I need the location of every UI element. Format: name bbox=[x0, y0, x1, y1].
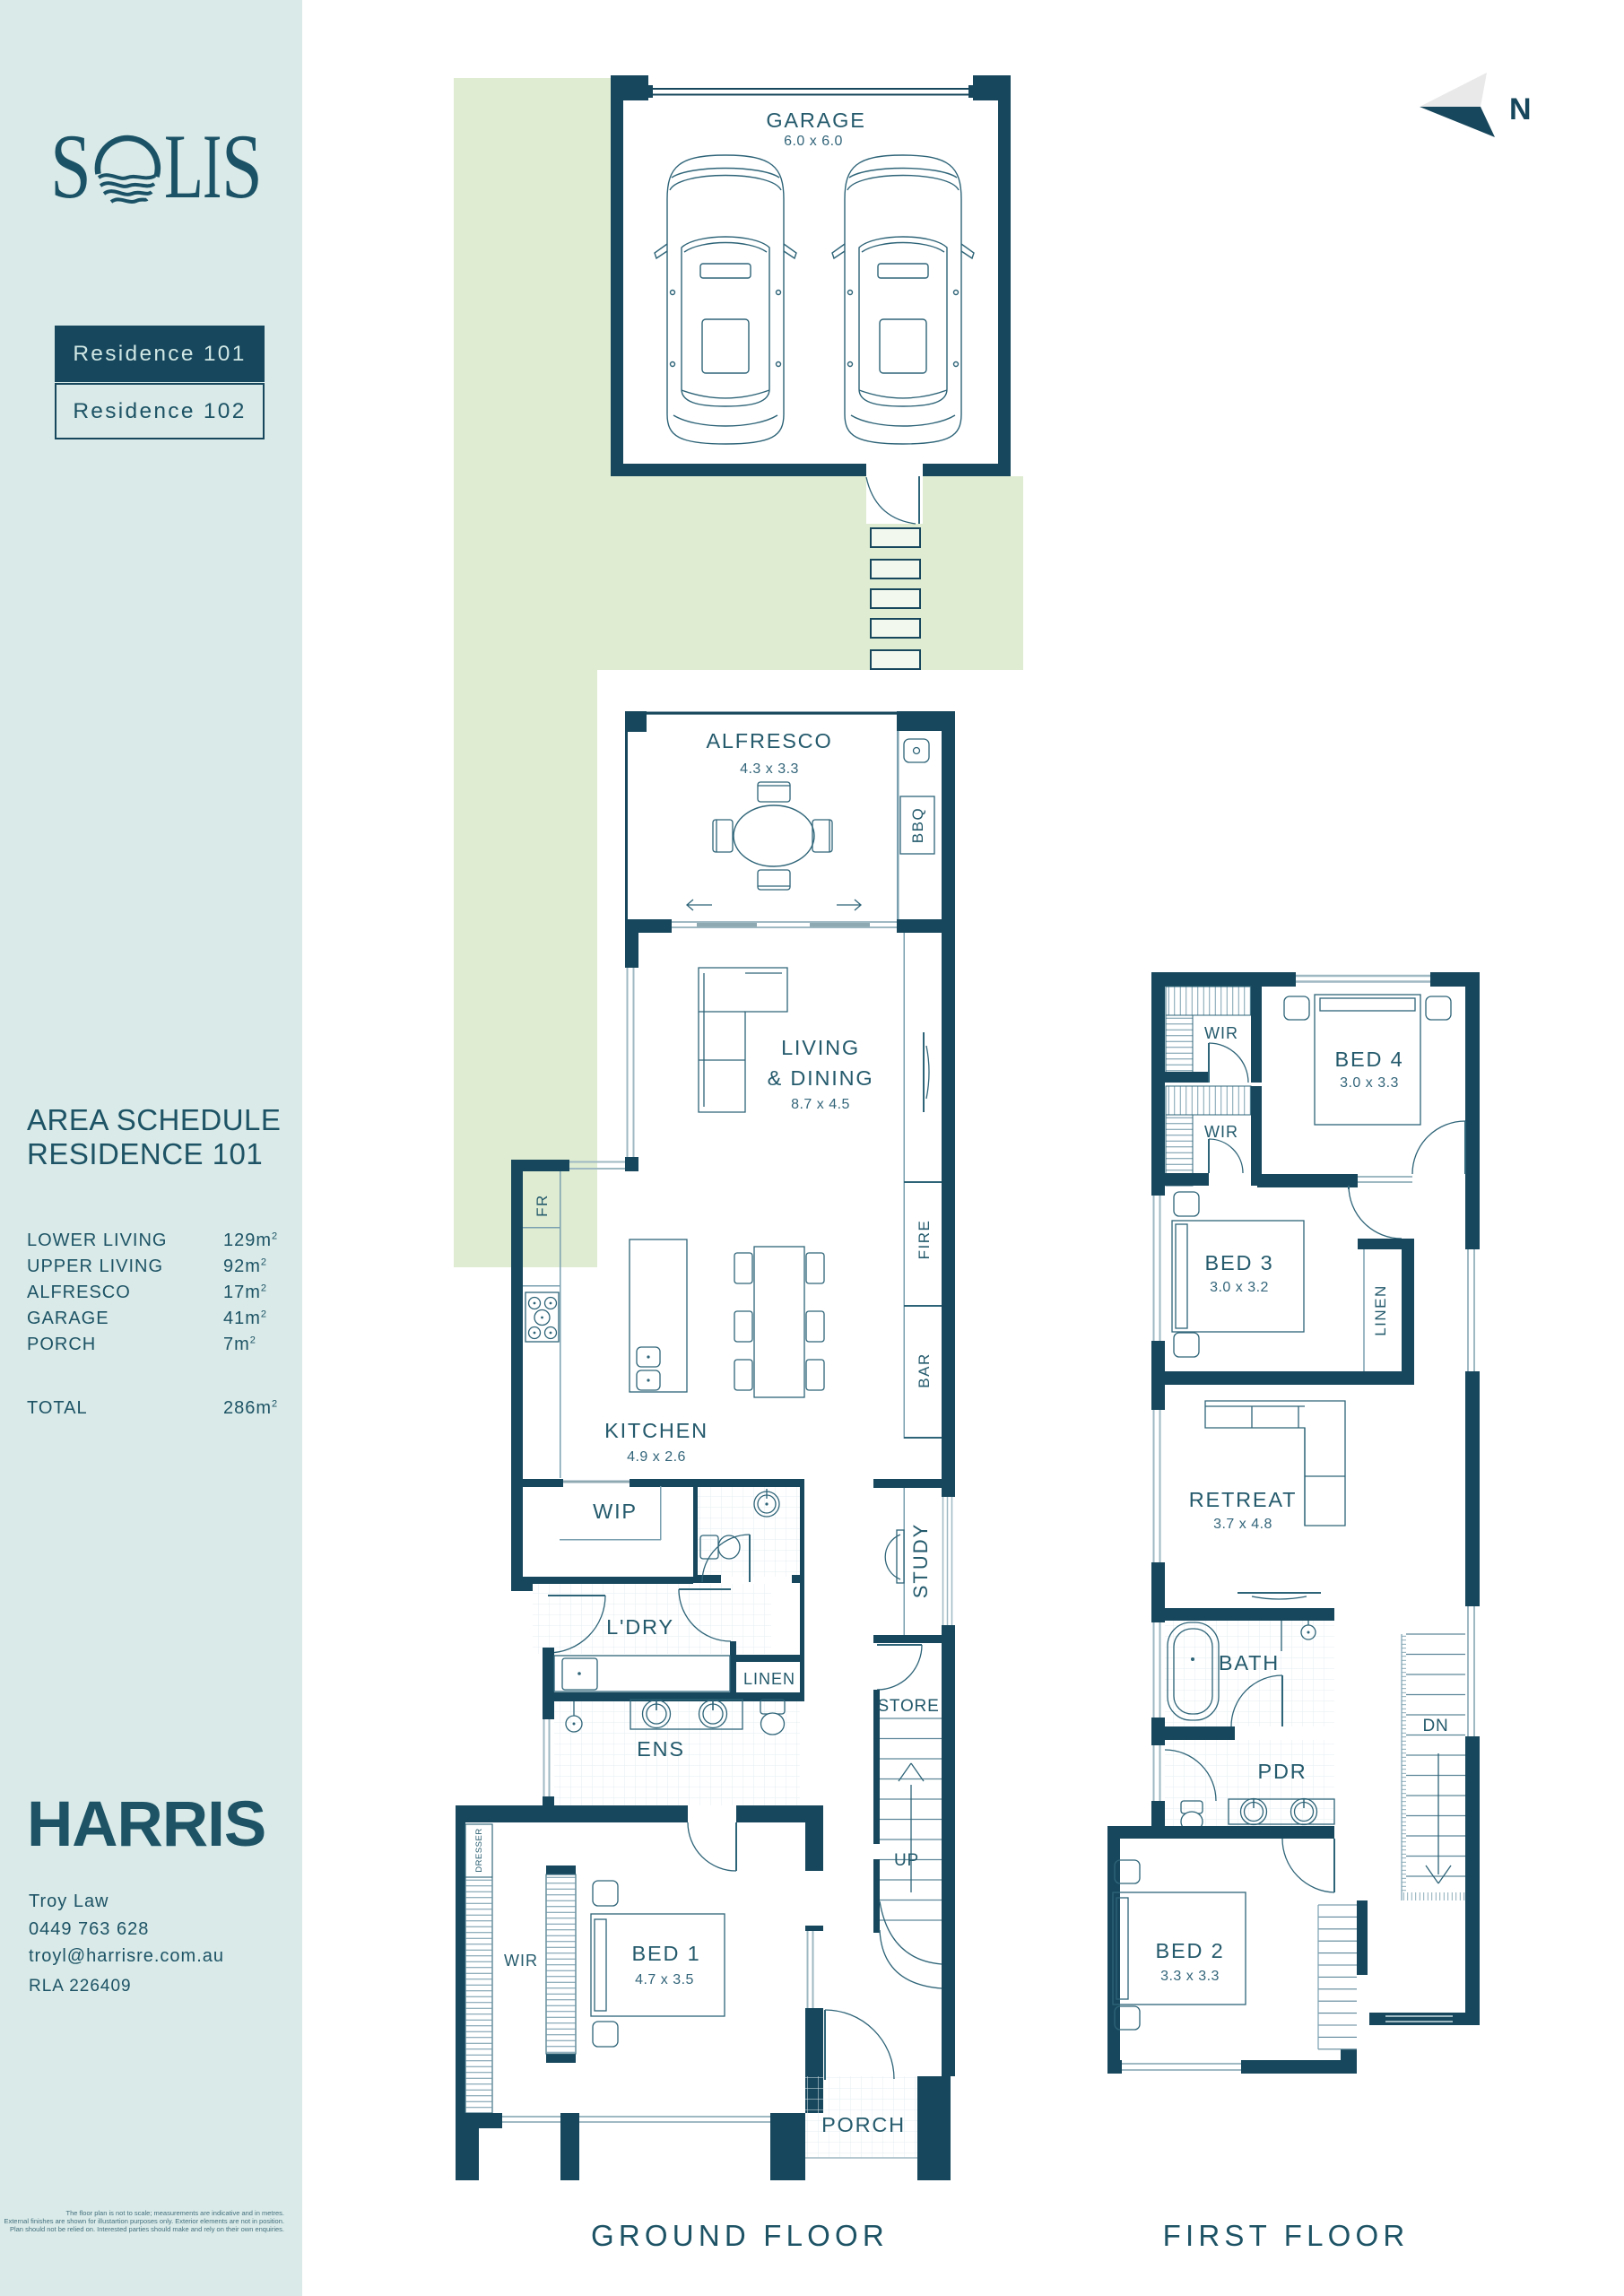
svg-text:3.0 x 3.3: 3.0 x 3.3 bbox=[1340, 1075, 1399, 1091]
svg-text:LINEN: LINEN bbox=[1372, 1284, 1389, 1336]
svg-text:WIR: WIR bbox=[1204, 1123, 1238, 1141]
svg-text:4.3 x 3.3: 4.3 x 3.3 bbox=[740, 761, 799, 777]
svg-text:FIRE: FIRE bbox=[916, 1220, 933, 1260]
svg-text:BED 1: BED 1 bbox=[632, 1942, 701, 1965]
svg-text:FIRST FLOOR: FIRST FLOOR bbox=[1163, 2219, 1410, 2252]
svg-text:BED 2: BED 2 bbox=[1156, 1939, 1225, 1962]
svg-text:4.7 x 3.5: 4.7 x 3.5 bbox=[635, 1972, 694, 1987]
svg-text:STUDY: STUDY bbox=[909, 1523, 932, 1599]
svg-text:WIR: WIR bbox=[1204, 1024, 1238, 1042]
svg-text:PORCH: PORCH bbox=[821, 2113, 906, 2136]
svg-text:8.7 x 4.5: 8.7 x 4.5 bbox=[791, 1097, 850, 1112]
svg-text:LIVING: LIVING bbox=[781, 1036, 860, 1059]
svg-text:N: N bbox=[1509, 92, 1532, 126]
svg-text:6.0 x 6.0: 6.0 x 6.0 bbox=[784, 134, 843, 149]
svg-text:DN: DN bbox=[1422, 1717, 1448, 1735]
svg-text:3.0 x 3.2: 3.0 x 3.2 bbox=[1210, 1280, 1269, 1295]
svg-text:BED 4: BED 4 bbox=[1335, 1048, 1404, 1071]
svg-text:FR: FR bbox=[534, 1194, 551, 1217]
svg-text:STORE: STORE bbox=[877, 1697, 939, 1716]
svg-text:4.9 x 2.6: 4.9 x 2.6 bbox=[627, 1449, 686, 1465]
svg-text:BATH: BATH bbox=[1219, 1651, 1280, 1674]
svg-text:3.7 x 4.8: 3.7 x 4.8 bbox=[1213, 1517, 1272, 1532]
svg-text:3.3 x 3.3: 3.3 x 3.3 bbox=[1160, 1969, 1220, 1984]
svg-text:BAR: BAR bbox=[916, 1352, 933, 1387]
svg-text:BBQ: BBQ bbox=[909, 807, 926, 843]
svg-text:& DINING: & DINING bbox=[768, 1066, 874, 1090]
svg-text:UP: UP bbox=[894, 1851, 919, 1870]
svg-text:LINEN: LINEN bbox=[743, 1670, 795, 1688]
svg-text:L'DRY: L'DRY bbox=[606, 1615, 674, 1639]
svg-text:GARAGE: GARAGE bbox=[766, 109, 865, 132]
svg-text:ENS: ENS bbox=[637, 1737, 685, 1761]
svg-text:KITCHEN: KITCHEN bbox=[604, 1419, 708, 1442]
svg-text:BED 3: BED 3 bbox=[1205, 1251, 1274, 1274]
svg-text:WIR: WIR bbox=[504, 1952, 538, 1970]
svg-text:ALFRESCO: ALFRESCO bbox=[706, 729, 832, 752]
svg-text:PDR: PDR bbox=[1257, 1760, 1307, 1783]
svg-text:WIP: WIP bbox=[593, 1500, 638, 1523]
svg-text:GROUND FLOOR: GROUND FLOOR bbox=[591, 2219, 889, 2252]
svg-text:RETREAT: RETREAT bbox=[1189, 1488, 1298, 1511]
svg-text:DRESSER: DRESSER bbox=[474, 1828, 484, 1872]
